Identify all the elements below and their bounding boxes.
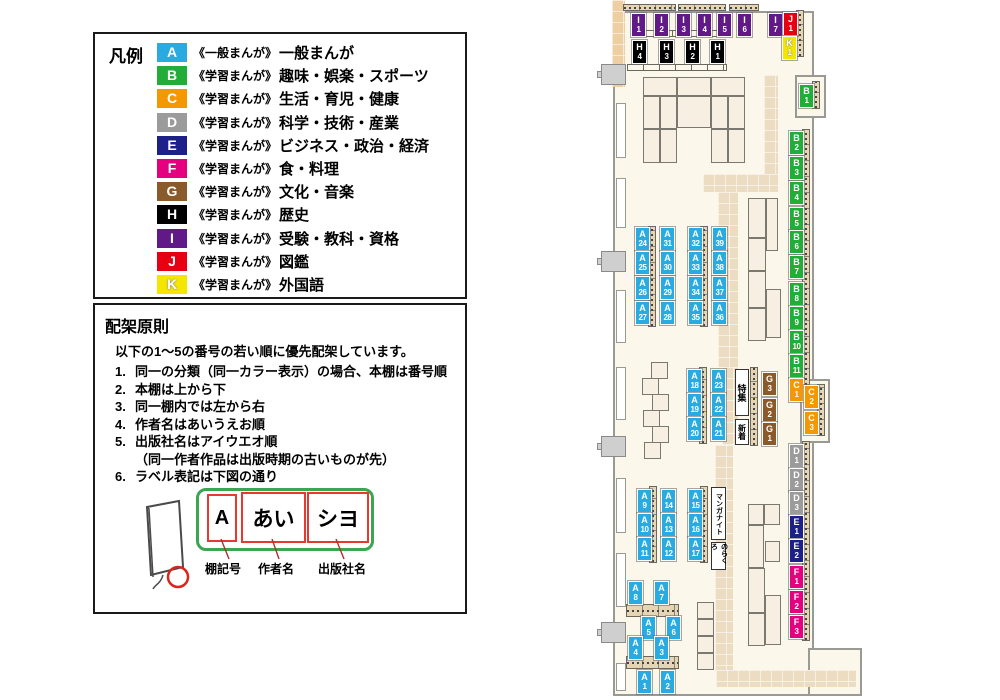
shelf-label-I4: I4 (697, 13, 712, 37)
door-handle (597, 629, 602, 636)
legend-type: 《学習まんが》 (193, 90, 277, 107)
legend-chip-A: A (157, 43, 187, 62)
shelf-label-A7: A7 (654, 581, 669, 605)
table-block (660, 96, 677, 129)
legend-type: 《学習まんが》 (193, 276, 277, 293)
shelf-label-A10: A10 (637, 513, 652, 537)
window (616, 290, 626, 343)
legend-row-D: D《学習まんが》科学・技術・産業 (157, 111, 429, 134)
shelf-label-H3: H3 (659, 40, 674, 64)
legend-category: 食・料理 (279, 158, 339, 179)
rule-item: 4.作者名はあいうえお順 (115, 416, 447, 434)
shelf-label-H1: H1 (710, 40, 725, 64)
door (601, 64, 626, 85)
legend-type: 《学習まんが》 (193, 253, 277, 270)
rule-item: 3.同一棚内では左から右 (115, 398, 447, 416)
legend-type: 《学習まんが》 (193, 183, 277, 200)
shelf-label-A39: A39 (712, 227, 727, 251)
shelf-block (748, 504, 764, 525)
door-handle (597, 258, 602, 265)
shelf-label-B11: B11 (789, 354, 804, 378)
table-block (711, 77, 745, 96)
shelf-label-A4: A4 (628, 636, 643, 660)
table-block (660, 129, 677, 163)
rule-item: 5.出版社名はアイウエオ順 (115, 433, 447, 451)
area-label-マンガナイト: マンガナイト (711, 487, 726, 540)
legend-items: A《一般まんが》一般まんがB《学習まんが》趣味・娯楽・スポーツC《学習まんが》生… (157, 41, 429, 296)
shelf-label-G1: G1 (762, 422, 777, 446)
legend-chip-B: B (157, 66, 187, 85)
shelf-strip (678, 4, 726, 11)
rule-item: 1.同一の分類（同一カラー表示）の場合、本棚は番号順 (115, 363, 447, 381)
legend-category: 文化・音楽 (279, 181, 354, 202)
shelf-label-A11: A11 (637, 537, 652, 561)
table-block (677, 77, 711, 96)
shelf-label-E2: E2 (789, 539, 804, 563)
legend-row-H: H《学習まんが》歴史 (157, 203, 429, 226)
shelf-label-A20: A20 (687, 417, 702, 441)
shelf-label-A23: A23 (711, 369, 726, 393)
area-label-特集: 特集 (735, 369, 749, 416)
rules-list: 1.同一の分類（同一カラー表示）の場合、本棚は番号順2.本棚は上から下3.同一棚… (115, 363, 447, 486)
shelf-label-A18: A18 (687, 369, 702, 393)
shelf-label-A22: A22 (711, 393, 726, 417)
shelf-label-A26: A26 (635, 276, 650, 300)
area-label-のらくろ: のらくろ (711, 542, 726, 570)
legend-chip-I: I (157, 229, 187, 248)
table-block (643, 129, 660, 163)
legend-category: 科学・技術・産業 (279, 112, 399, 133)
legend-title: 凡例 (109, 42, 143, 67)
square-table (642, 378, 659, 395)
shelf-label-C1: C1 (789, 378, 804, 402)
door-handle (597, 71, 602, 78)
legend-row-K: K《学習まんが》外国語 (157, 273, 429, 296)
label-spine-diagram: A あい シヨ 棚記号 作者名 出版社名 (95, 485, 465, 610)
shelf-label-B10: B10 (789, 330, 804, 354)
legend-row-F: F《学習まんが》食・料理 (157, 157, 429, 180)
square-table (697, 619, 714, 636)
shelf-block (766, 198, 778, 251)
legend-box: 凡例 A《一般まんが》一般まんがB《学習まんが》趣味・娯楽・スポーツC《学習まん… (93, 32, 467, 299)
wall-shelf-strip (750, 367, 758, 446)
counter-bar (627, 64, 727, 71)
legend-row-B: B《学習まんが》趣味・娯楽・スポーツ (157, 64, 429, 87)
square-table (644, 442, 661, 459)
shelf-label-A14: A14 (661, 489, 676, 513)
shelf-label-I1: I1 (631, 13, 646, 37)
window (616, 663, 626, 691)
shelf-block (748, 198, 766, 238)
shelf-label-K1: K1 (782, 36, 797, 60)
legend-type: 《学習まんが》 (193, 230, 277, 247)
shelf-label-H4: H4 (632, 40, 647, 64)
shelf-label-A16: A16 (688, 513, 703, 537)
shelf-label-B6: B6 (789, 230, 804, 254)
window (616, 178, 626, 228)
library-floor-map-page: 凡例 A《一般まんが》一般まんがB《学習まんが》趣味・娯楽・スポーツC《学習まん… (0, 0, 1000, 700)
legend-category: 受験・教科・資格 (279, 228, 399, 249)
shelf-label-A13: A13 (661, 513, 676, 537)
shelf-label-A17: A17 (688, 537, 703, 561)
shelf-label-D1: D1 (789, 444, 804, 468)
caption-shelf-code: 棚記号 (205, 560, 241, 577)
legend-row-G: G《学習まんが》文化・音楽 (157, 180, 429, 203)
shelf-label-A8: A8 (628, 581, 643, 605)
shelf-label-A24: A24 (635, 227, 650, 251)
legend-chip-H: H (157, 205, 187, 224)
legend-row-I: I《学習まんが》受験・教科・資格 (157, 227, 429, 250)
shelf-label-B4: B4 (789, 181, 804, 205)
square-table (652, 426, 669, 443)
shelf-label-B7: B7 (789, 255, 804, 279)
shelf-label-A1: A1 (637, 670, 652, 694)
shelf-label-D2: D2 (789, 468, 804, 492)
window (616, 367, 626, 420)
legend-chip-J: J (157, 252, 187, 271)
shelf-label-F1: F1 (789, 565, 804, 589)
label-author: あい (241, 492, 306, 543)
shelf-label-A9: A9 (637, 489, 652, 513)
legend-category: ビジネス・政治・経済 (279, 135, 429, 156)
legend-category: 一般まんが (279, 42, 354, 63)
shelf-label-B9: B9 (789, 306, 804, 330)
legend-row-E: E《学習まんが》ビジネス・政治・経済 (157, 134, 429, 157)
door (601, 251, 626, 272)
legend-type: 《学習まんが》 (193, 114, 277, 131)
square-table (697, 653, 714, 670)
shelf-label-A3: A3 (654, 636, 669, 660)
shelf-label-B3: B3 (789, 156, 804, 180)
table-block (728, 96, 745, 129)
window (616, 478, 626, 533)
shelf-label-A35: A35 (688, 301, 703, 325)
walkway (703, 174, 778, 192)
shelf-block (748, 308, 766, 341)
area-label-新着: 新着 (735, 419, 749, 445)
shelf-label-A33: A33 (688, 251, 703, 275)
shelf-label-J1: J1 (783, 12, 798, 36)
shelf-label-I3: I3 (676, 13, 691, 37)
shelf-label-I7: I7 (768, 13, 783, 37)
table-block (711, 96, 728, 129)
legend-type: 《学習まんが》 (193, 160, 277, 177)
shelf-label-C2: C2 (804, 385, 819, 409)
shelf-label-A36: A36 (712, 301, 727, 325)
door (601, 622, 626, 643)
table-block (711, 129, 728, 163)
shelf-label-A2: A2 (660, 670, 675, 694)
caption-author: 作者名 (258, 560, 294, 577)
legend-chip-C: C (157, 89, 187, 108)
legend-chip-D: D (157, 113, 187, 132)
legend-row-J: J《学習まんが》図鑑 (157, 250, 429, 273)
shelf-label-I6: I6 (737, 13, 752, 37)
walkway (764, 75, 778, 175)
book-icon (133, 495, 193, 595)
walkway (716, 670, 856, 687)
legend-chip-E: E (157, 136, 187, 155)
legend-type: 《学習まんが》 (193, 206, 277, 223)
shelf-label-G3: G3 (762, 372, 777, 396)
shelf-label-A19: A19 (687, 393, 702, 417)
shelf-block (766, 289, 781, 338)
shelf-label-A29: A29 (660, 276, 675, 300)
table-block (643, 77, 677, 96)
shelf-strip (729, 4, 759, 11)
shelf-label-A32: A32 (688, 227, 703, 251)
legend-category: 生活・育児・健康 (279, 88, 399, 109)
shelf-label-C3: C3 (804, 411, 819, 435)
shelf-label-A37: A37 (712, 276, 727, 300)
square-table (697, 602, 714, 619)
table-block (677, 96, 711, 128)
window (616, 103, 626, 158)
shelf-label-E1: E1 (789, 515, 804, 539)
shelf-block (748, 613, 765, 646)
shelf-label-A38: A38 (712, 251, 727, 275)
caption-publisher: 出版社名 (318, 560, 366, 577)
legend-chip-K: K (157, 275, 187, 294)
shelf-block (764, 504, 780, 525)
shelf-label-A30: A30 (660, 251, 675, 275)
shelf-label-B8: B8 (789, 282, 804, 306)
square-table (643, 410, 660, 427)
shelf-label-A12: A12 (661, 537, 676, 561)
shelf-label-A28: A28 (660, 301, 675, 325)
legend-type: 《一般まんが》 (193, 44, 277, 61)
legend-chip-G: G (157, 182, 187, 201)
shelf-label-A27: A27 (635, 301, 650, 325)
legend-type: 《学習まんが》 (193, 137, 277, 154)
legend-row-C: C《学習まんが》生活・育児・健康 (157, 87, 429, 110)
legend-row-A: A《一般まんが》一般まんが (157, 41, 429, 64)
shelf-block (765, 595, 781, 645)
shelf-label-A34: A34 (688, 276, 703, 300)
shelf-label-B2: B2 (789, 131, 804, 155)
shelf-label-A31: A31 (660, 227, 675, 251)
door (601, 436, 626, 457)
rule-item: 0.（同一作者作品は出版時期の古いものが先） (115, 451, 447, 469)
square-table (697, 636, 714, 653)
shelf-label-I2: I2 (654, 13, 669, 37)
shelf-label-A21: A21 (711, 417, 726, 441)
window (616, 553, 626, 607)
rules-intro: 以下の1～5の番号の若い順に優先配架しています。 (115, 341, 414, 360)
rules-box: 配架原則 以下の1～5の番号の若い順に優先配架しています。 1.同一の分類（同一… (93, 303, 467, 614)
shelf-label-I5: I5 (717, 13, 732, 37)
square-table (651, 362, 668, 379)
shelf-block (748, 271, 766, 308)
shelf-block (765, 541, 780, 562)
label-publisher: シヨ (307, 492, 369, 543)
square-table (652, 394, 669, 411)
table-block (728, 129, 745, 163)
legend-category: 外国語 (279, 274, 324, 295)
shelf-label-A15: A15 (688, 489, 703, 513)
legend-chip-F: F (157, 159, 187, 178)
rule-item: 2.本棚は上から下 (115, 381, 447, 399)
shelf-label-F3: F3 (789, 615, 804, 639)
shelf-label-H2: H2 (685, 40, 700, 64)
shelf-label-B5: B5 (789, 207, 804, 231)
shelf-strip (623, 4, 676, 11)
shelf-label-G2: G2 (762, 398, 777, 422)
caption-connector-lines (195, 537, 375, 561)
shelf-label-F2: F2 (789, 590, 804, 614)
shelf-label-A25: A25 (635, 251, 650, 275)
rule-item: 6.ラベル表記は下図の通り (115, 468, 447, 486)
shelf-block (748, 525, 764, 568)
rules-title: 配架原則 (105, 313, 169, 337)
shelf-block (748, 238, 766, 271)
legend-category: 歴史 (279, 204, 309, 225)
door-handle (597, 443, 602, 450)
table-block (643, 96, 660, 129)
shelf-label-D3: D3 (789, 491, 804, 515)
shelf-label-B1: B1 (799, 84, 814, 108)
legend-category: 図鑑 (279, 251, 309, 272)
shelf-block (748, 568, 765, 613)
legend-category: 趣味・娯楽・スポーツ (279, 65, 429, 86)
label-shelf-code: A (207, 494, 237, 542)
legend-type: 《学習まんが》 (193, 67, 277, 84)
